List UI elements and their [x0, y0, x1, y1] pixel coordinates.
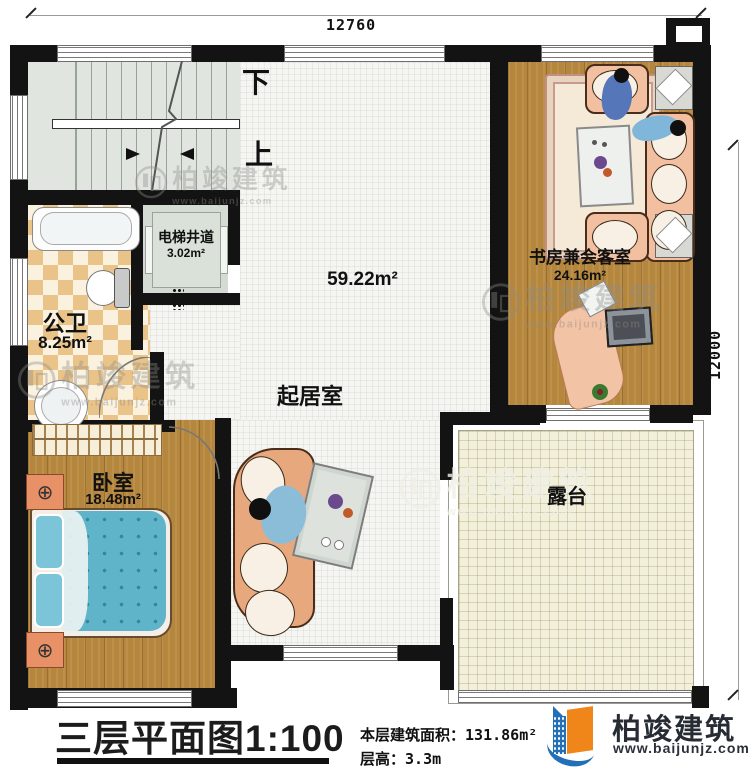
watermark-logo-icon: [135, 166, 167, 198]
study-area: 24.16m²: [515, 268, 645, 283]
logo-building-orange: [567, 706, 593, 754]
floor-height-value: 3.3m: [405, 750, 441, 768]
teacup: [321, 537, 331, 547]
toilet-tank: [114, 268, 130, 308]
watermark: 柏竣建筑 www.baijunjz.com: [18, 352, 199, 408]
bedroom-door-arc: [168, 426, 220, 480]
bed-sheet-fold: [62, 511, 88, 631]
flower-arrangement: [594, 156, 607, 169]
pillow: [34, 572, 64, 628]
nightstand: ⊕: [26, 474, 64, 510]
right-dimension-line: [738, 142, 739, 700]
sofa-cushion: [240, 543, 288, 593]
desk-plant: [597, 389, 603, 395]
study-left-wall: [490, 45, 508, 405]
watermark-text: 柏竣建筑: [61, 352, 199, 396]
right-dimension-label: 12000: [706, 330, 724, 380]
terrace-wall-stub: [440, 412, 540, 425]
bedroom-area: 18.48m²: [68, 492, 158, 509]
dimension-tick: [25, 7, 36, 18]
watermark-url: www.baijunjz.com: [525, 318, 663, 330]
living-name: 起居室: [265, 385, 355, 409]
dimension-tick: [695, 7, 706, 18]
elevator-wall-bottom: [131, 293, 240, 305]
dimension-tick: [727, 139, 738, 150]
top-dimension-label: 12760: [326, 16, 376, 34]
bathtub-basin: [40, 212, 132, 245]
corner-column-void: [676, 26, 702, 42]
stairs-up-label: 上: [245, 140, 273, 171]
window: [57, 45, 192, 62]
watermark-url: www.baijunjz.com: [61, 396, 199, 408]
nightstand: ⊕: [26, 632, 64, 668]
flower-arrangement: [603, 168, 612, 177]
terrace-corner: [692, 686, 709, 708]
flower-arrangement: [343, 508, 353, 518]
wardrobe: [32, 424, 162, 456]
terrace-wall-stub: [440, 645, 454, 690]
study-name: 书房兼会客室: [515, 249, 645, 268]
table-item: [602, 142, 607, 147]
window: [57, 690, 192, 707]
logo-tower-blue: [553, 716, 566, 754]
sofa-cushion: [651, 164, 687, 204]
watermark-url: www.baijunjz.com: [172, 196, 291, 207]
floor-height-text: 层高：3.3m: [360, 748, 441, 769]
wardrobe-rod: [34, 438, 158, 440]
person-head: [249, 498, 271, 520]
person-head: [670, 120, 686, 136]
flower-arrangement: [328, 494, 343, 509]
brand-logo-icon: [545, 704, 609, 762]
window: [283, 645, 398, 661]
floor-area-text: 本层建筑面积：131.86m²: [360, 724, 537, 745]
stairs-down-label: 下: [242, 68, 270, 99]
table-item: [592, 140, 597, 145]
living-area: 59.22m²: [315, 270, 410, 291]
floor-area-value: 131.86m²: [465, 726, 537, 744]
window: [458, 690, 692, 703]
watermark-logo-icon: [482, 283, 519, 320]
watermark-text: 柏竣建筑: [172, 158, 291, 196]
brand-website: www.baijunjz.com: [613, 740, 750, 756]
elevator-area: 3.02m²: [143, 247, 229, 260]
logo-flag: [553, 706, 563, 716]
pillow: [34, 514, 64, 570]
window: [284, 45, 445, 62]
stair-bathroom-wall: [28, 190, 143, 205]
elevator-name: 电梯井道: [143, 230, 229, 245]
floor-height-label: 层高：: [360, 751, 405, 768]
plan-title: 三层平面图1:100: [55, 708, 345, 762]
plan-title-underline: [57, 758, 329, 764]
terrace-name: 露台: [532, 486, 602, 508]
dimension-tick: [727, 689, 738, 700]
window: [546, 408, 650, 421]
floor-area-label: 本层建筑面积：: [360, 727, 465, 744]
window: [541, 45, 654, 62]
window: [10, 95, 28, 180]
study-bottom-wall: [650, 405, 693, 423]
bathroom-area: 8.25m²: [24, 334, 106, 353]
terrace-wall-stub: [440, 598, 453, 645]
floor-plan-canvas: 12760 12000: [0, 0, 750, 776]
bathroom-right-wall: [131, 305, 143, 350]
watermark-logo-icon: [18, 361, 55, 398]
person-head: [614, 68, 629, 83]
living-room-floor: [240, 62, 490, 420]
teacup: [334, 540, 344, 550]
watermark-logo-icon: [400, 468, 441, 509]
window: [10, 258, 28, 346]
